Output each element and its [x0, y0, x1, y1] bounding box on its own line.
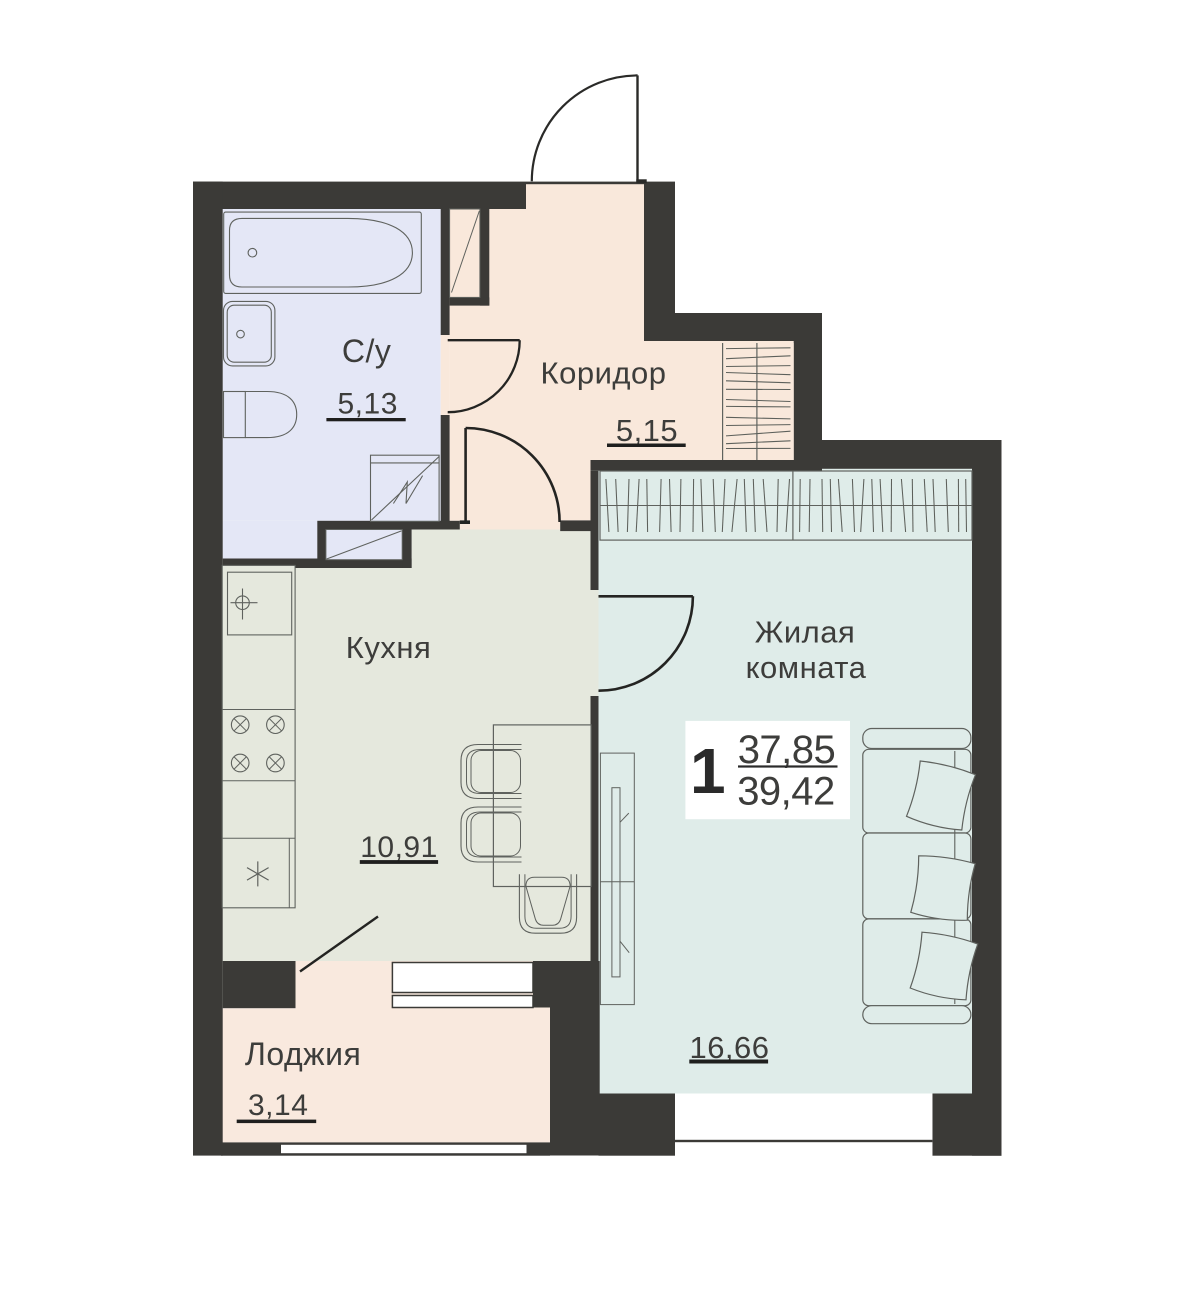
svg-text:Жилая: Жилая: [755, 615, 856, 650]
svg-text:5,15: 5,15: [616, 413, 678, 448]
svg-text:3,14: 3,14: [248, 1089, 308, 1122]
svg-text:Лоджия: Лоджия: [245, 1036, 361, 1072]
svg-text:Кухня: Кухня: [346, 630, 431, 665]
svg-text:Коридор: Коридор: [541, 356, 667, 391]
svg-text:1: 1: [690, 735, 726, 807]
svg-text:39,42: 39,42: [737, 769, 835, 813]
svg-text:комната: комната: [746, 650, 867, 685]
svg-text:10,91: 10,91: [360, 831, 438, 864]
svg-text:С/у: С/у: [342, 333, 392, 369]
svg-text:5,13: 5,13: [338, 388, 398, 421]
